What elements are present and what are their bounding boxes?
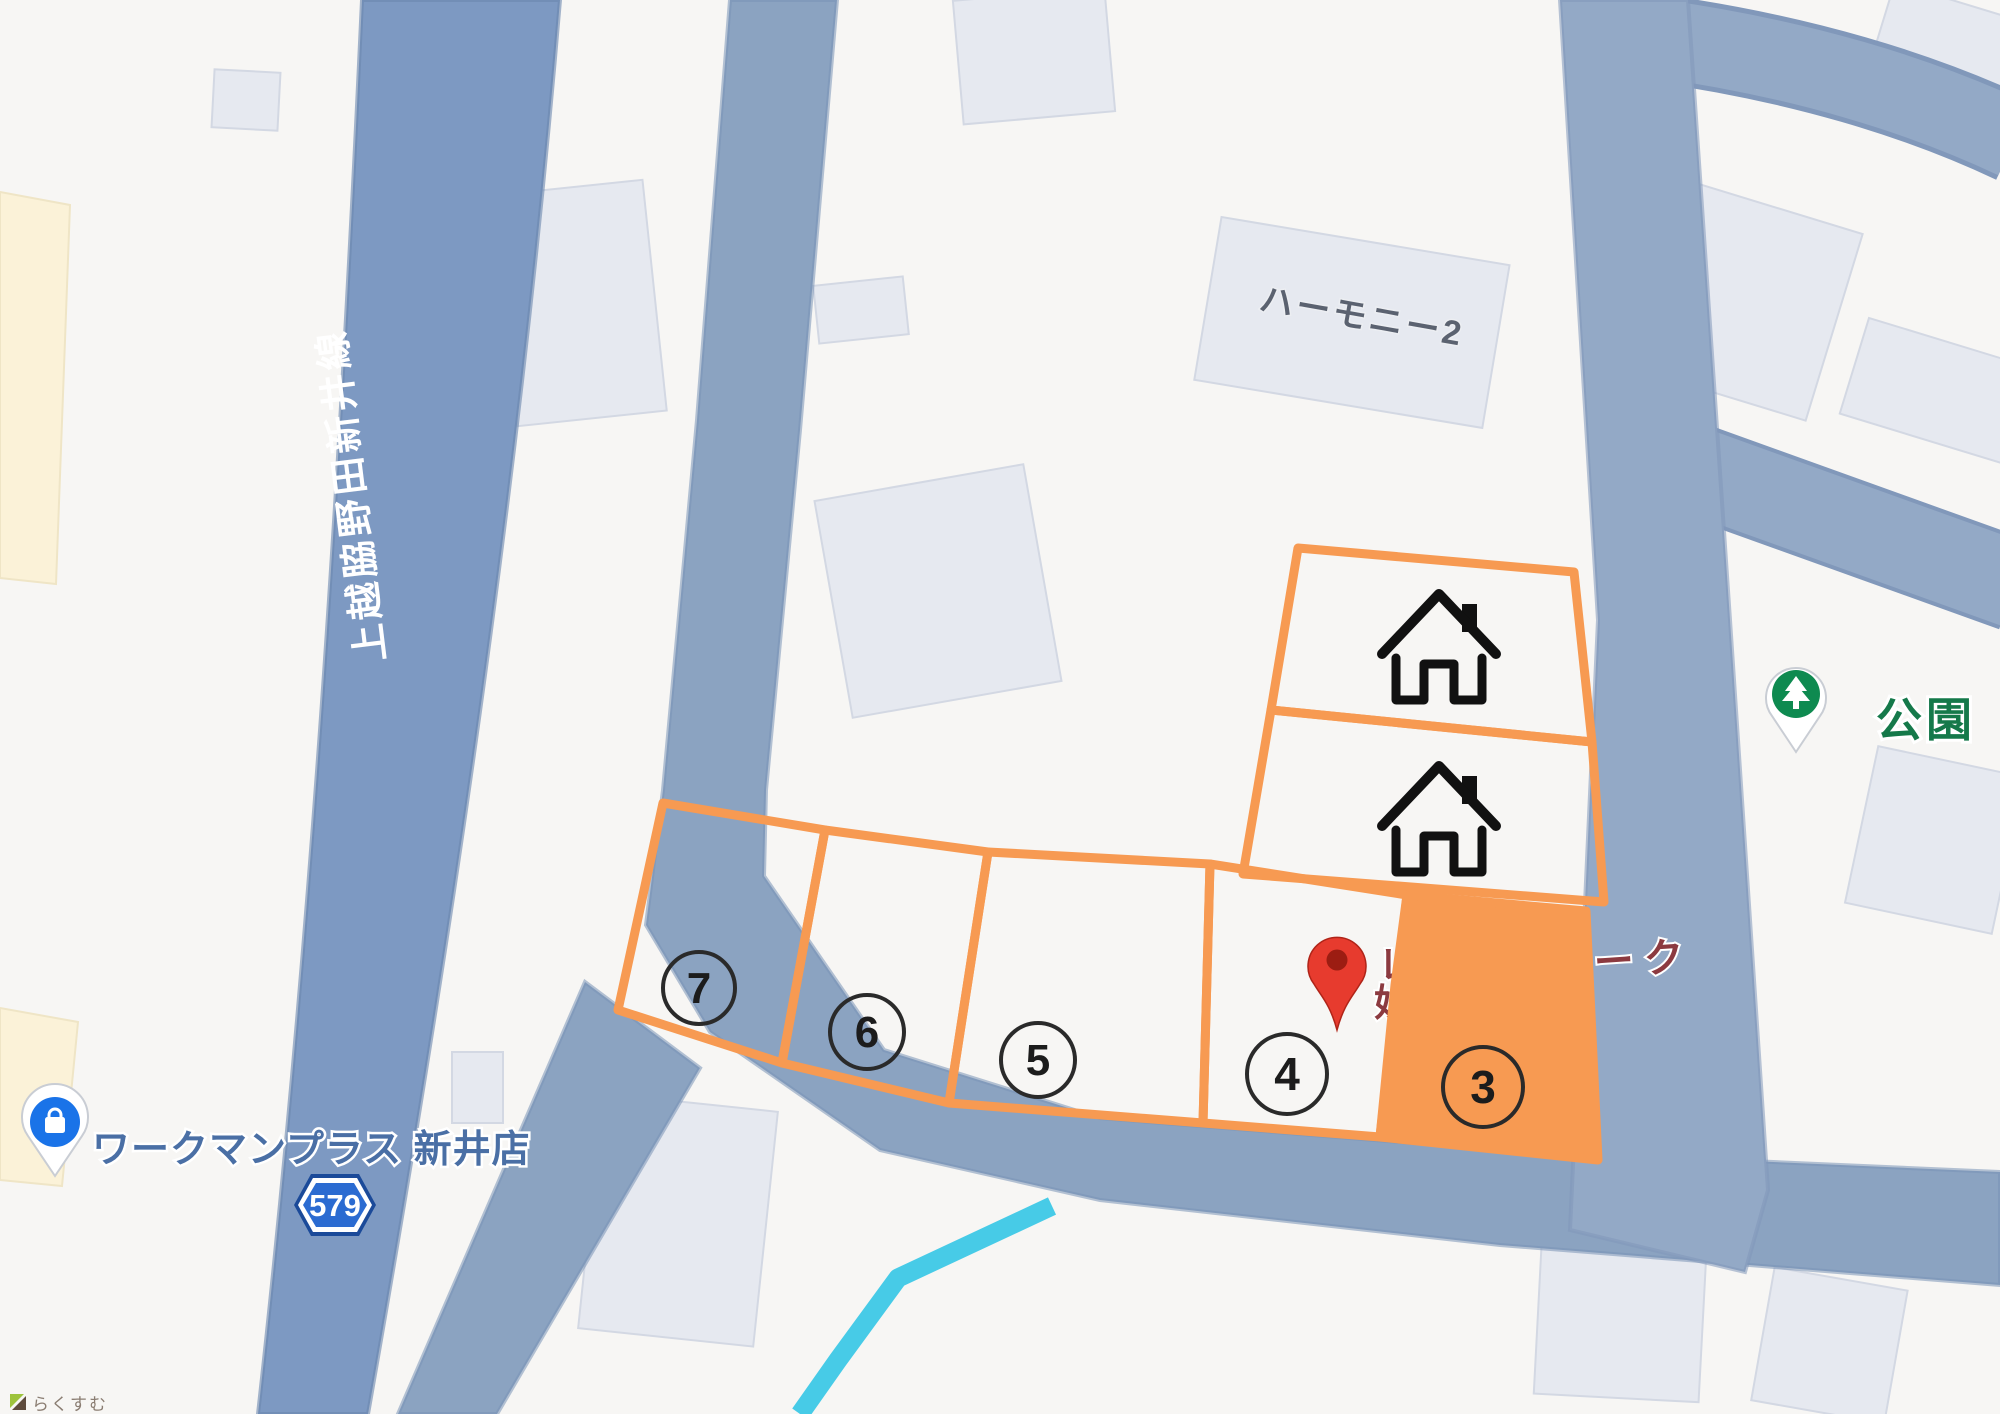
building-shape <box>815 464 1062 717</box>
route-shield-579[interactable]: 579 <box>294 1174 376 1236</box>
park-label[interactable]: 公園 <box>1876 694 1976 746</box>
lot-3-highlighted[interactable] <box>1380 895 1598 1160</box>
building-shape <box>953 0 1115 124</box>
svg-text:3: 3 <box>1470 1061 1496 1113</box>
watermark-text: らくすむ <box>32 1395 108 1414</box>
building-shape <box>212 69 281 130</box>
building-shape <box>452 1052 503 1123</box>
route-shield-number: 579 <box>309 1188 361 1223</box>
building-shape <box>813 276 909 343</box>
map-canvas: 上越脇野田新井線 579 ハーモニー2 公園 ワークマンプラス 新井店 レ 妙 … <box>0 0 2000 1414</box>
svg-text:6: 6 <box>855 1008 879 1057</box>
svg-text:5: 5 <box>1026 1036 1050 1085</box>
svg-text:4: 4 <box>1274 1048 1300 1100</box>
store-label[interactable]: ワークマンプラス 新井店 <box>92 1129 531 1171</box>
building-shape <box>1751 1267 1907 1414</box>
svg-text:7: 7 <box>687 964 711 1013</box>
